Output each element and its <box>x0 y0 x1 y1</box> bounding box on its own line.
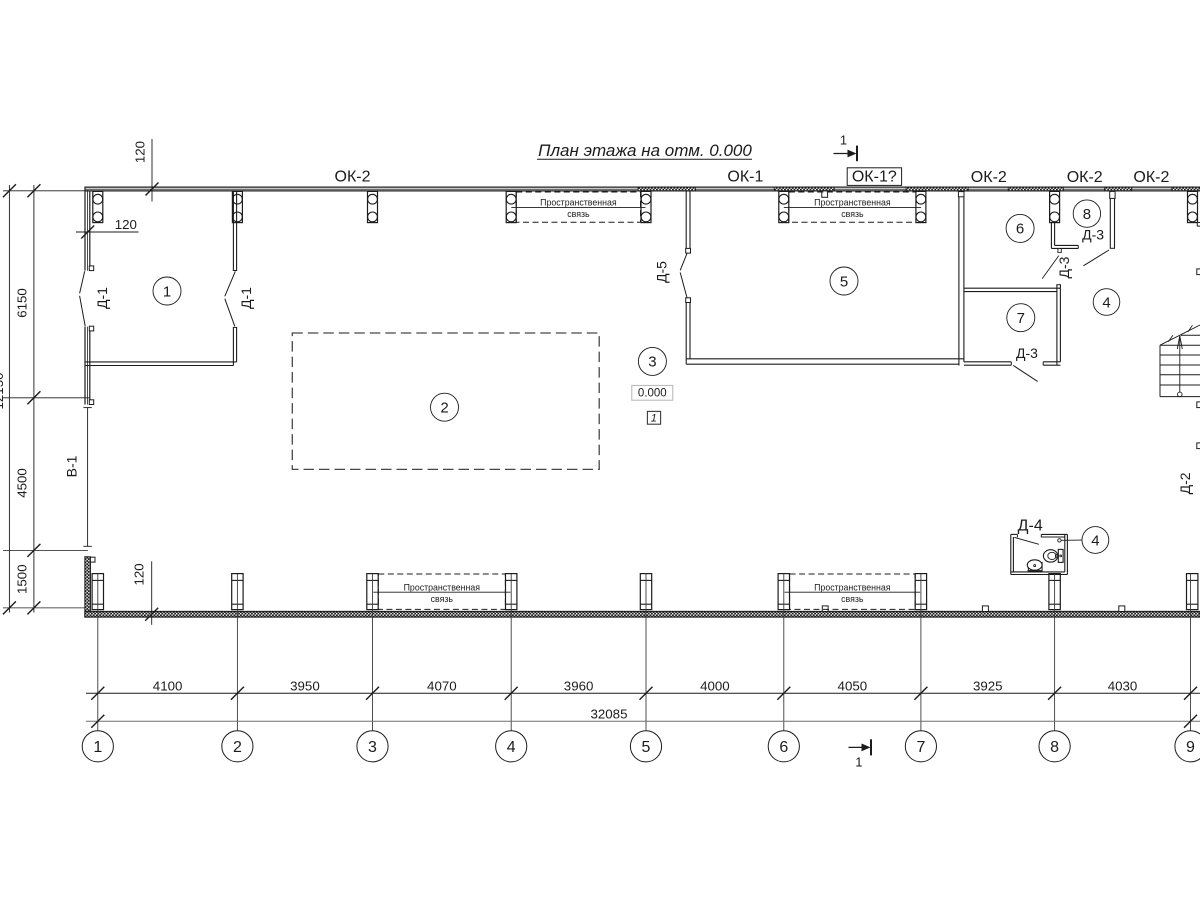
svg-text:В-1: В-1 <box>64 455 80 477</box>
svg-text:Д-5: Д-5 <box>653 261 669 283</box>
svg-text:связь: связь <box>841 209 864 219</box>
svg-text:Пространственная: Пространственная <box>404 582 481 592</box>
svg-text:1: 1 <box>855 755 862 770</box>
svg-text:ОК-1: ОК-1 <box>727 169 763 186</box>
svg-text:6: 6 <box>1016 221 1024 238</box>
svg-text:120: 120 <box>115 217 137 232</box>
svg-text:Д-3: Д-3 <box>1082 227 1104 243</box>
svg-text:1: 1 <box>651 413 657 425</box>
svg-text:2: 2 <box>233 739 242 756</box>
svg-text:Д-1: Д-1 <box>94 287 110 309</box>
svg-text:3950: 3950 <box>290 679 320 694</box>
svg-text:7: 7 <box>916 739 925 756</box>
svg-text:ОК-2: ОК-2 <box>335 169 371 186</box>
svg-text:ОК-1?: ОК-1? <box>852 169 897 186</box>
svg-text:План этажа на отм. 0.000: План этажа на отм. 0.000 <box>538 141 752 160</box>
svg-text:5: 5 <box>840 273 848 290</box>
svg-text:12150: 12150 <box>0 373 6 410</box>
svg-text:Д-3: Д-3 <box>1056 256 1072 278</box>
svg-text:связь: связь <box>431 594 454 604</box>
svg-text:6150: 6150 <box>15 288 30 318</box>
svg-text:32085: 32085 <box>591 707 628 722</box>
svg-text:3: 3 <box>648 354 656 371</box>
svg-text:Пространственная: Пространственная <box>814 198 891 208</box>
svg-text:1: 1 <box>840 133 847 148</box>
svg-text:связь: связь <box>841 594 864 604</box>
svg-text:1: 1 <box>163 283 171 300</box>
svg-text:4050: 4050 <box>838 679 868 694</box>
svg-text:Д-3: Д-3 <box>1016 345 1038 361</box>
svg-text:120: 120 <box>133 141 148 163</box>
svg-text:связь: связь <box>567 209 590 219</box>
svg-text:5: 5 <box>642 739 651 756</box>
svg-text:0.000: 0.000 <box>638 388 667 400</box>
svg-text:Пространственная: Пространственная <box>814 582 891 592</box>
svg-text:8: 8 <box>1050 739 1059 756</box>
svg-text:1: 1 <box>93 739 102 756</box>
svg-text:4100: 4100 <box>153 679 183 694</box>
svg-text:ОК-2: ОК-2 <box>971 169 1007 186</box>
svg-text:3960: 3960 <box>564 679 594 694</box>
svg-text:Д-4: Д-4 <box>1018 518 1043 535</box>
svg-text:ОК-2: ОК-2 <box>1067 169 1103 186</box>
svg-text:4: 4 <box>1091 532 1099 549</box>
svg-text:3925: 3925 <box>973 679 1003 694</box>
svg-text:8: 8 <box>1083 206 1091 223</box>
svg-text:9: 9 <box>1186 739 1195 756</box>
svg-text:4000: 4000 <box>700 679 730 694</box>
svg-text:4030: 4030 <box>1108 679 1138 694</box>
svg-text:4070: 4070 <box>427 679 457 694</box>
svg-text:3: 3 <box>368 739 377 756</box>
svg-text:6: 6 <box>779 739 788 756</box>
svg-text:4: 4 <box>507 739 516 756</box>
svg-text:2: 2 <box>440 400 448 417</box>
svg-text:7: 7 <box>1017 310 1025 327</box>
svg-text:ОК-2: ОК-2 <box>1133 169 1169 186</box>
svg-text:Пространственная: Пространственная <box>540 198 617 208</box>
svg-text:1500: 1500 <box>15 564 30 594</box>
svg-text:Д-1: Д-1 <box>238 287 254 309</box>
svg-text:Д-2: Д-2 <box>1177 472 1193 494</box>
svg-text:4500: 4500 <box>15 468 30 498</box>
svg-text:120: 120 <box>132 563 147 585</box>
svg-text:4: 4 <box>1102 294 1110 311</box>
